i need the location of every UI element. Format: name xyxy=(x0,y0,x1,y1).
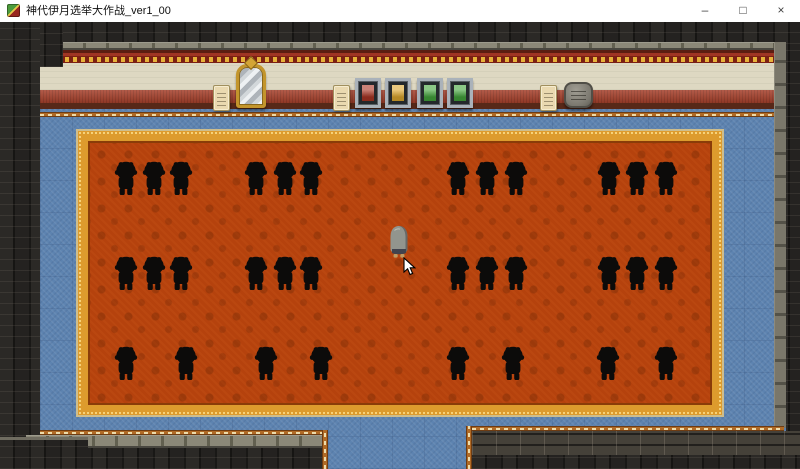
npc-silhouette[interactable] xyxy=(596,160,622,196)
npc-silhouette[interactable] xyxy=(113,160,139,196)
left-wall-bricks xyxy=(0,22,40,469)
npc-silhouette[interactable] xyxy=(168,255,194,291)
sign-panel[interactable] xyxy=(417,78,443,108)
paper-notice[interactable] xyxy=(333,85,350,111)
npc-silhouette[interactable] xyxy=(298,160,324,196)
sign-panel[interactable] xyxy=(355,78,381,108)
bottom-right-bricks-upper xyxy=(472,431,800,455)
npc-silhouette[interactable] xyxy=(243,160,269,196)
npc-silhouette[interactable] xyxy=(113,345,139,381)
window-title: 神代伊月选举大作战_ver1_00 xyxy=(26,0,171,22)
stone-tablet[interactable] xyxy=(564,82,593,108)
npc-silhouette[interactable] xyxy=(653,255,679,291)
npc-silhouette[interactable] xyxy=(243,255,269,291)
npc-silhouette[interactable] xyxy=(624,255,650,291)
close-button[interactable]: × xyxy=(762,0,800,22)
npc-silhouette[interactable] xyxy=(503,160,529,196)
npc-silhouette[interactable] xyxy=(500,345,526,381)
sign-panel[interactable] xyxy=(385,78,411,108)
floor-stitch-border-top xyxy=(40,112,774,117)
bottom-right-bricks-lower xyxy=(472,455,800,469)
wall-stone-cap xyxy=(40,42,776,50)
window-controls: – □ × xyxy=(686,0,800,22)
npc-silhouette[interactable] xyxy=(141,160,167,196)
npc-silhouette[interactable] xyxy=(113,255,139,291)
npc-silhouette[interactable] xyxy=(272,255,298,291)
maximize-button[interactable]: □ xyxy=(724,0,762,22)
npc-silhouette[interactable] xyxy=(596,255,622,291)
bottom-left-corner-bricks xyxy=(0,437,88,469)
npc-silhouette[interactable] xyxy=(445,345,471,381)
npc-silhouette[interactable] xyxy=(308,345,334,381)
paper-notice[interactable] xyxy=(213,85,230,111)
mouse-cursor xyxy=(403,257,416,276)
npc-silhouette[interactable] xyxy=(474,255,500,291)
npc-silhouette[interactable] xyxy=(595,345,621,381)
npc-silhouette[interactable] xyxy=(445,160,471,196)
npc-silhouette[interactable] xyxy=(298,255,324,291)
exit-left-stitch-border xyxy=(322,430,328,469)
wall-gold-ornament-band xyxy=(40,56,776,63)
game-viewport[interactable] xyxy=(0,22,800,469)
paper-notice[interactable] xyxy=(540,85,557,111)
top-wall-bricks xyxy=(0,22,800,44)
npc-silhouette[interactable] xyxy=(653,345,679,381)
minimize-button[interactable]: – xyxy=(686,0,724,22)
npc-silhouette[interactable] xyxy=(168,160,194,196)
sign-panel[interactable] xyxy=(447,78,473,108)
npc-silhouette[interactable] xyxy=(624,160,650,196)
window-titlebar: 神代伊月选举大作战_ver1_00 – □ × xyxy=(0,0,800,23)
npc-silhouette[interactable] xyxy=(653,160,679,196)
npc-silhouette[interactable] xyxy=(253,345,279,381)
app-window: 神代伊月选举大作战_ver1_00 – □ × xyxy=(0,0,800,469)
npc-silhouette[interactable] xyxy=(141,255,167,291)
npc-silhouette[interactable] xyxy=(503,255,529,291)
player-character[interactable] xyxy=(386,224,412,258)
right-stone-pillar xyxy=(774,42,786,428)
npc-silhouette[interactable] xyxy=(474,160,500,196)
npc-silhouette[interactable] xyxy=(272,160,298,196)
npc-silhouette[interactable] xyxy=(173,345,199,381)
npc-silhouette[interactable] xyxy=(445,255,471,291)
wall-mirror[interactable] xyxy=(236,64,266,108)
app-icon xyxy=(7,4,20,17)
